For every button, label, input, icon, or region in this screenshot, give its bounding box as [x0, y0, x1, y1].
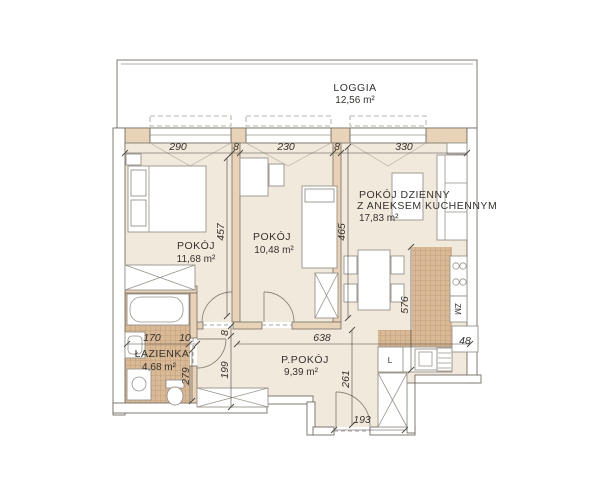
room1-area: 11,68 m²	[177, 254, 216, 265]
bathroom-area: 4,68 m²	[142, 362, 177, 373]
dim-counter: 48	[459, 335, 471, 347]
bathtub	[127, 294, 189, 325]
dining-chair-3	[391, 256, 404, 274]
living-label-line2: Z ANEKSEM KUCHENNYM	[357, 200, 497, 212]
desk	[240, 158, 268, 196]
left-exterior-wall	[113, 128, 125, 415]
fridge-label: L	[388, 356, 393, 365]
dim-hall-length: 638	[313, 332, 331, 344]
dim-wall-a: 8	[233, 141, 239, 153]
dim-room1-width: 290	[168, 141, 187, 153]
living-area: 17,83 m²	[359, 213, 399, 224]
washing-machine	[127, 369, 151, 400]
dim-bath-nib: 10	[179, 332, 191, 344]
dim-room2-depth: 465	[336, 223, 348, 241]
bed-pillow-1	[131, 170, 146, 196]
hallway-label: P.POKÓJ	[281, 353, 329, 366]
sofa-side-table	[447, 143, 467, 154]
dining-table	[358, 250, 390, 310]
floor-plan-page: LOGGIA 12,56 m²	[0, 0, 600, 503]
single-bed-pillow	[305, 189, 334, 202]
kitchen-bottom-wall	[415, 375, 481, 383]
dim-hall-nook: 199	[219, 361, 231, 379]
hall-top-wall-seg1	[197, 322, 203, 329]
dishwasher-label: ZM	[453, 303, 462, 315]
bathroom-right-wall-upper	[190, 293, 197, 338]
hallway-area: 9,39 m²	[284, 367, 319, 378]
dim-living-width: 330	[395, 141, 413, 153]
hall-top-wall-seg3	[292, 322, 341, 329]
kitchen-tile-floor-bottom	[378, 330, 452, 347]
entry-column-right-wall	[407, 383, 415, 433]
stove	[450, 256, 467, 296]
bed-pillow-2	[131, 200, 146, 226]
window-room1	[150, 128, 231, 143]
desk-chair	[269, 164, 284, 186]
room1-label: POKÓJ	[177, 239, 215, 252]
room2-label: POKÓJ	[253, 230, 291, 243]
loggia-sill-2	[246, 116, 331, 126]
toilet-bowl	[167, 387, 183, 405]
dim-wall-b: 8	[334, 141, 340, 153]
dim-entry-width: 193	[353, 414, 371, 426]
dim-bath-width: 170	[143, 332, 161, 344]
dim-bath-depth: 279	[180, 367, 192, 386]
loggia: LOGGIA 12,56 m²	[117, 60, 477, 128]
window-living	[350, 128, 426, 143]
dining-chair-1	[344, 256, 357, 274]
bottom-wall-entry-left	[313, 427, 334, 435]
loggia-sill-3	[350, 116, 426, 126]
nightstand	[126, 154, 141, 165]
dim-entry-depth: 261	[340, 370, 352, 389]
dim-room1-depth: 457	[215, 222, 227, 241]
loggia-area: 12,56 m²	[335, 95, 375, 106]
dim-kitchen-wall: 576	[399, 296, 411, 314]
wall-pier-3	[330, 128, 350, 143]
hall-top-wall-seg2	[233, 322, 262, 329]
wall-room1-room2	[232, 143, 240, 322]
kitchen-tile-floor-right	[412, 247, 452, 330]
dim-room2-width: 230	[276, 141, 295, 153]
floor-plan-drawing: LOGGIA 12,56 m²	[0, 0, 600, 503]
room2-area: 10,48 m²	[254, 245, 294, 256]
loggia-label: LOGGIA	[333, 82, 376, 94]
loggia-sill-1	[150, 116, 231, 126]
entry-alcove-wall	[267, 396, 313, 404]
bathroom-label: ŁAZIENKA	[135, 348, 190, 360]
dim-hall-wall-thk: 8	[219, 330, 231, 336]
wall-pier-4	[425, 128, 467, 143]
kitchen-drawers	[437, 348, 452, 371]
dining-chair-2	[344, 284, 357, 302]
